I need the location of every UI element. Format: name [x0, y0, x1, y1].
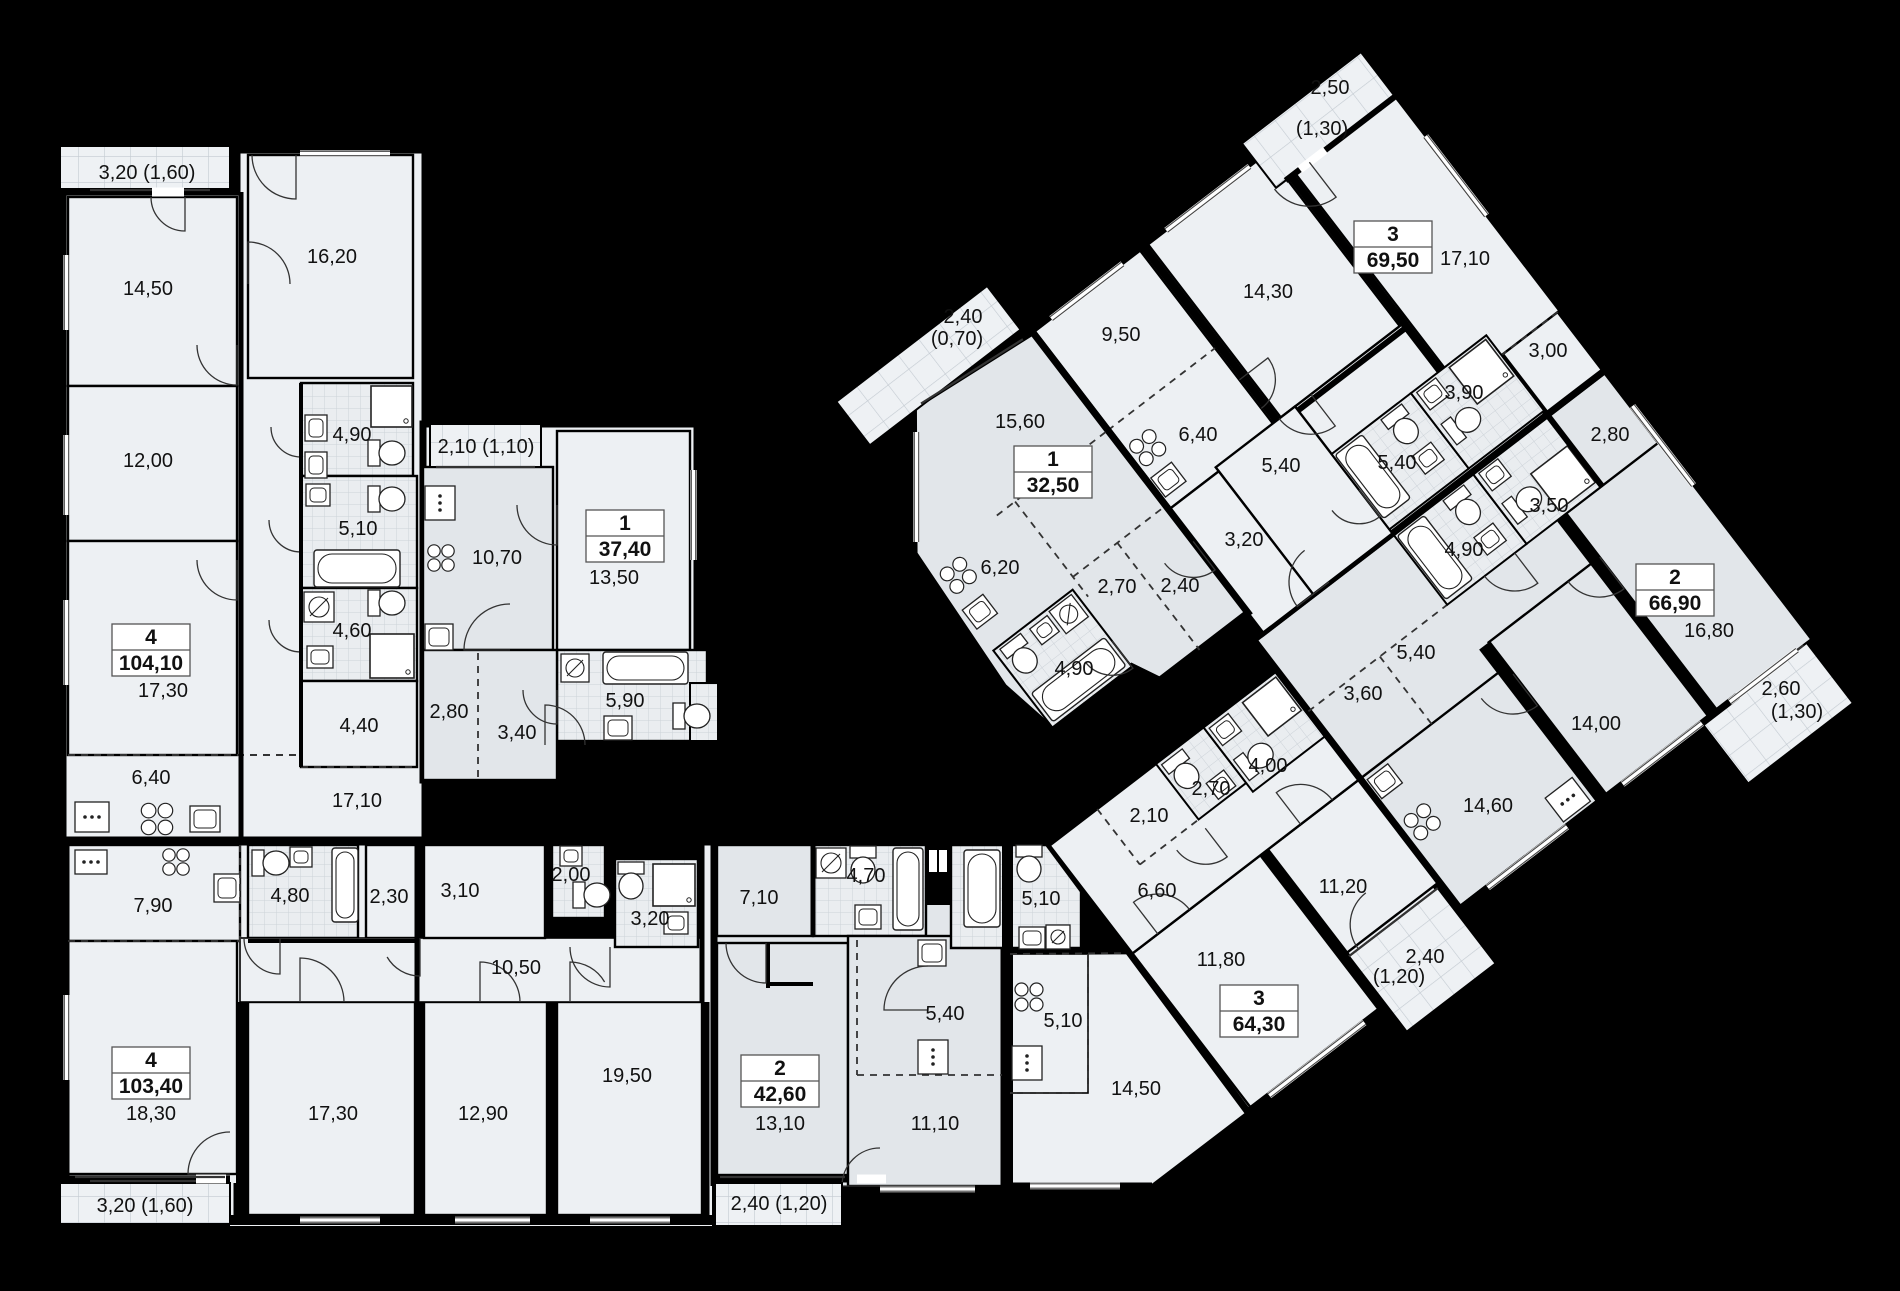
svg-text:18,30: 18,30 [126, 1103, 176, 1125]
svg-text:4: 4 [145, 626, 157, 649]
svg-text:3,90: 3,90 [1445, 382, 1484, 404]
svg-text:9,50: 9,50 [1102, 324, 1141, 346]
svg-text:1: 1 [619, 512, 631, 535]
svg-text:37,40: 37,40 [599, 538, 652, 561]
svg-text:16,20: 16,20 [307, 246, 357, 268]
svg-text:14,50: 14,50 [1111, 1078, 1161, 1100]
svg-text:19,50: 19,50 [602, 1065, 652, 1087]
svg-text:104,10: 104,10 [119, 652, 183, 675]
svg-text:2,10: 2,10 [1130, 805, 1169, 827]
svg-text:6,60: 6,60 [1138, 880, 1177, 902]
svg-text:4,90: 4,90 [1055, 658, 1094, 680]
svg-text:6,20: 6,20 [981, 557, 1020, 579]
svg-text:5,40: 5,40 [1397, 642, 1436, 664]
svg-text:14,60: 14,60 [1463, 795, 1513, 817]
svg-text:2,50: 2,50 [1311, 77, 1350, 99]
svg-text:3,20: 3,20 [631, 908, 670, 930]
svg-text:3,20: 3,20 [1225, 529, 1264, 551]
svg-text:5,40: 5,40 [1262, 455, 1301, 477]
svg-text:13,10: 13,10 [755, 1113, 805, 1135]
svg-text:66,90: 66,90 [1649, 592, 1702, 615]
svg-text:2,40 (1,20): 2,40 (1,20) [731, 1193, 828, 1215]
svg-text:64,30: 64,30 [1233, 1013, 1286, 1036]
svg-text:4,80: 4,80 [271, 885, 310, 907]
svg-text:3,20 (1,60): 3,20 (1,60) [97, 1195, 194, 1217]
svg-text:103,40: 103,40 [119, 1075, 183, 1098]
svg-text:5,10: 5,10 [1022, 888, 1061, 910]
svg-text:11,10: 11,10 [911, 1113, 960, 1135]
svg-text:2,60: 2,60 [1762, 678, 1801, 700]
svg-text:2,80: 2,80 [1591, 424, 1630, 446]
svg-text:13,50: 13,50 [589, 567, 639, 589]
svg-text:1: 1 [1047, 448, 1059, 471]
svg-text:2,40: 2,40 [1161, 575, 1200, 597]
svg-text:7,10: 7,10 [740, 887, 779, 909]
svg-text:3,20 (1,60): 3,20 (1,60) [99, 162, 196, 184]
svg-text:14,30: 14,30 [1243, 281, 1293, 303]
svg-text:11,80: 11,80 [1197, 949, 1246, 971]
svg-text:2,30: 2,30 [370, 886, 409, 908]
svg-text:5,90: 5,90 [606, 690, 645, 712]
svg-text:15,60: 15,60 [995, 411, 1045, 433]
svg-text:(1,20): (1,20) [1373, 966, 1425, 988]
svg-text:2,80: 2,80 [430, 701, 469, 723]
svg-text:4,00: 4,00 [1249, 755, 1288, 777]
svg-text:(0,70): (0,70) [931, 328, 983, 350]
svg-text:3,60: 3,60 [1344, 683, 1383, 705]
svg-text:(1,30): (1,30) [1771, 701, 1823, 723]
svg-text:4,40: 4,40 [340, 715, 379, 737]
svg-text:4: 4 [145, 1049, 157, 1072]
svg-text:17,10: 17,10 [1440, 248, 1490, 270]
svg-text:3,10: 3,10 [441, 880, 480, 902]
svg-text:3,50: 3,50 [1530, 495, 1569, 517]
svg-text:(1,30): (1,30) [1296, 118, 1348, 140]
svg-text:5,10: 5,10 [1044, 1010, 1083, 1032]
svg-text:5,10: 5,10 [339, 518, 378, 540]
svg-text:3,40: 3,40 [498, 722, 537, 744]
svg-text:5,40: 5,40 [926, 1003, 965, 1025]
svg-text:5,40: 5,40 [1378, 452, 1417, 474]
svg-text:2: 2 [774, 1057, 786, 1080]
svg-text:2,70: 2,70 [1192, 778, 1231, 800]
svg-text:3: 3 [1387, 223, 1399, 246]
svg-text:32,50: 32,50 [1027, 474, 1080, 497]
svg-text:3,00: 3,00 [1529, 340, 1568, 362]
svg-text:14,50: 14,50 [123, 278, 173, 300]
svg-text:17,30: 17,30 [138, 680, 188, 702]
svg-text:2: 2 [1669, 566, 1681, 589]
svg-text:17,30: 17,30 [308, 1103, 358, 1125]
svg-text:2,10 (1,10): 2,10 (1,10) [438, 436, 535, 458]
svg-text:12,00: 12,00 [123, 450, 173, 472]
svg-text:4,90: 4,90 [333, 424, 372, 446]
svg-text:17,10: 17,10 [332, 790, 382, 812]
svg-text:2,00: 2,00 [552, 864, 591, 886]
svg-text:2,40: 2,40 [944, 306, 983, 328]
svg-text:6,40: 6,40 [1179, 424, 1218, 446]
svg-text:2,70: 2,70 [1098, 576, 1137, 598]
svg-text:69,50: 69,50 [1367, 249, 1420, 272]
svg-text:10,50: 10,50 [491, 957, 541, 979]
svg-text:2,40: 2,40 [1406, 946, 1445, 968]
svg-text:4,70: 4,70 [847, 865, 886, 887]
svg-text:12,90: 12,90 [458, 1103, 508, 1125]
svg-text:10,70: 10,70 [472, 547, 522, 569]
svg-text:4,60: 4,60 [333, 620, 372, 642]
svg-text:14,00: 14,00 [1571, 713, 1621, 735]
svg-text:6,40: 6,40 [132, 767, 171, 789]
svg-text:11,20: 11,20 [1319, 876, 1368, 898]
svg-text:4,90: 4,90 [1445, 539, 1484, 561]
svg-text:3: 3 [1253, 987, 1265, 1010]
svg-text:42,60: 42,60 [754, 1083, 807, 1106]
svg-text:16,80: 16,80 [1684, 620, 1734, 642]
svg-text:7,90: 7,90 [134, 895, 173, 917]
